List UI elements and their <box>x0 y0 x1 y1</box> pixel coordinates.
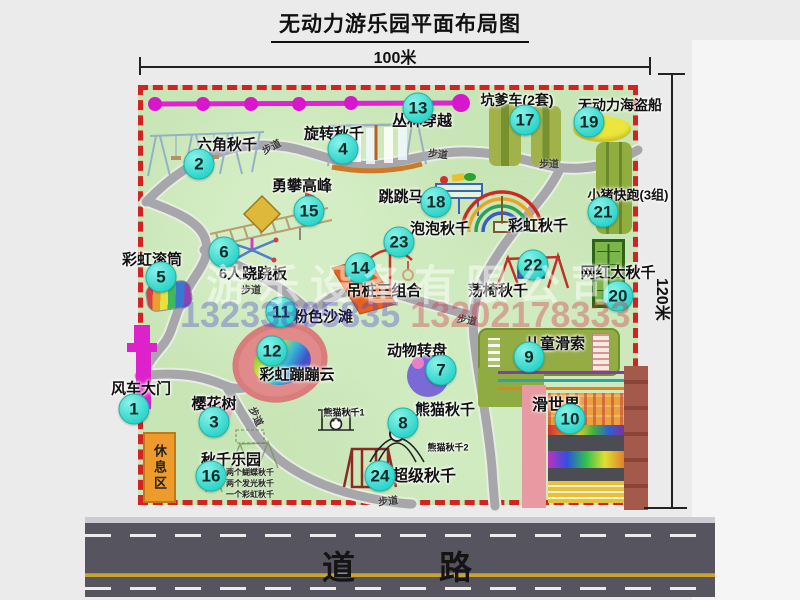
animal-turntable-shape <box>407 355 449 397</box>
watermark-phones: 13233805835 13202178333 <box>180 294 631 336</box>
slide-world-dark-row-2 <box>548 468 624 481</box>
pit-car-court-1 <box>489 104 521 166</box>
slide-track-3 <box>498 387 630 390</box>
dimension-top-tick-left <box>139 57 141 75</box>
page-title: 无动力游乐园平面布局图 <box>0 8 800 43</box>
dimension-right-tick-top <box>658 73 685 75</box>
road-label: 道 路 <box>85 541 715 589</box>
piggy-run-track <box>596 142 632 234</box>
dimension-width-label: 100米 <box>355 44 435 68</box>
slide-world-area <box>478 362 650 510</box>
slide-world-yellow-row <box>548 481 624 503</box>
windmill-gate-column <box>136 351 151 409</box>
pit-car-court-2 <box>531 106 561 166</box>
slide-world-brown-strip <box>624 366 648 510</box>
rainbow-slide-1 <box>548 425 624 435</box>
road-lane-dash-top <box>85 534 715 537</box>
road-curb <box>85 517 715 523</box>
slide-track-1 <box>498 371 630 374</box>
slide-world-pink-strip <box>522 385 546 508</box>
dimension-top-tick-right <box>649 57 651 75</box>
watermark-phone-2: 13202178333 <box>410 294 630 335</box>
pirate-ship-shape <box>573 116 631 142</box>
slide-world-orange-row <box>548 393 624 425</box>
rainbow-slide-2 <box>548 451 624 468</box>
cherry-tree-spot <box>207 402 221 414</box>
animal-turntable-dot <box>412 357 424 369</box>
cherry-tree-trunk <box>214 422 218 431</box>
rest-area-box: 休息区 <box>143 432 176 503</box>
page-title-text: 无动力游乐园平面布局图 <box>271 8 529 43</box>
rest-area-label: 休息区 <box>150 444 169 492</box>
windmill-gate-top <box>134 325 150 344</box>
cherry-tree-shape <box>200 396 232 426</box>
dimension-right-tick-bottom <box>644 507 687 509</box>
slide-track-2 <box>498 379 630 382</box>
dimension-height-label: 120米 <box>652 278 676 321</box>
right-margin <box>692 40 800 600</box>
park-layout-plan: 无动力游乐园平面布局图 <box>0 0 800 600</box>
slide-world-dark-row-1 <box>548 435 624 451</box>
watermark-phone-1: 13233805835 <box>180 294 400 335</box>
road: 道 路 <box>85 517 715 597</box>
